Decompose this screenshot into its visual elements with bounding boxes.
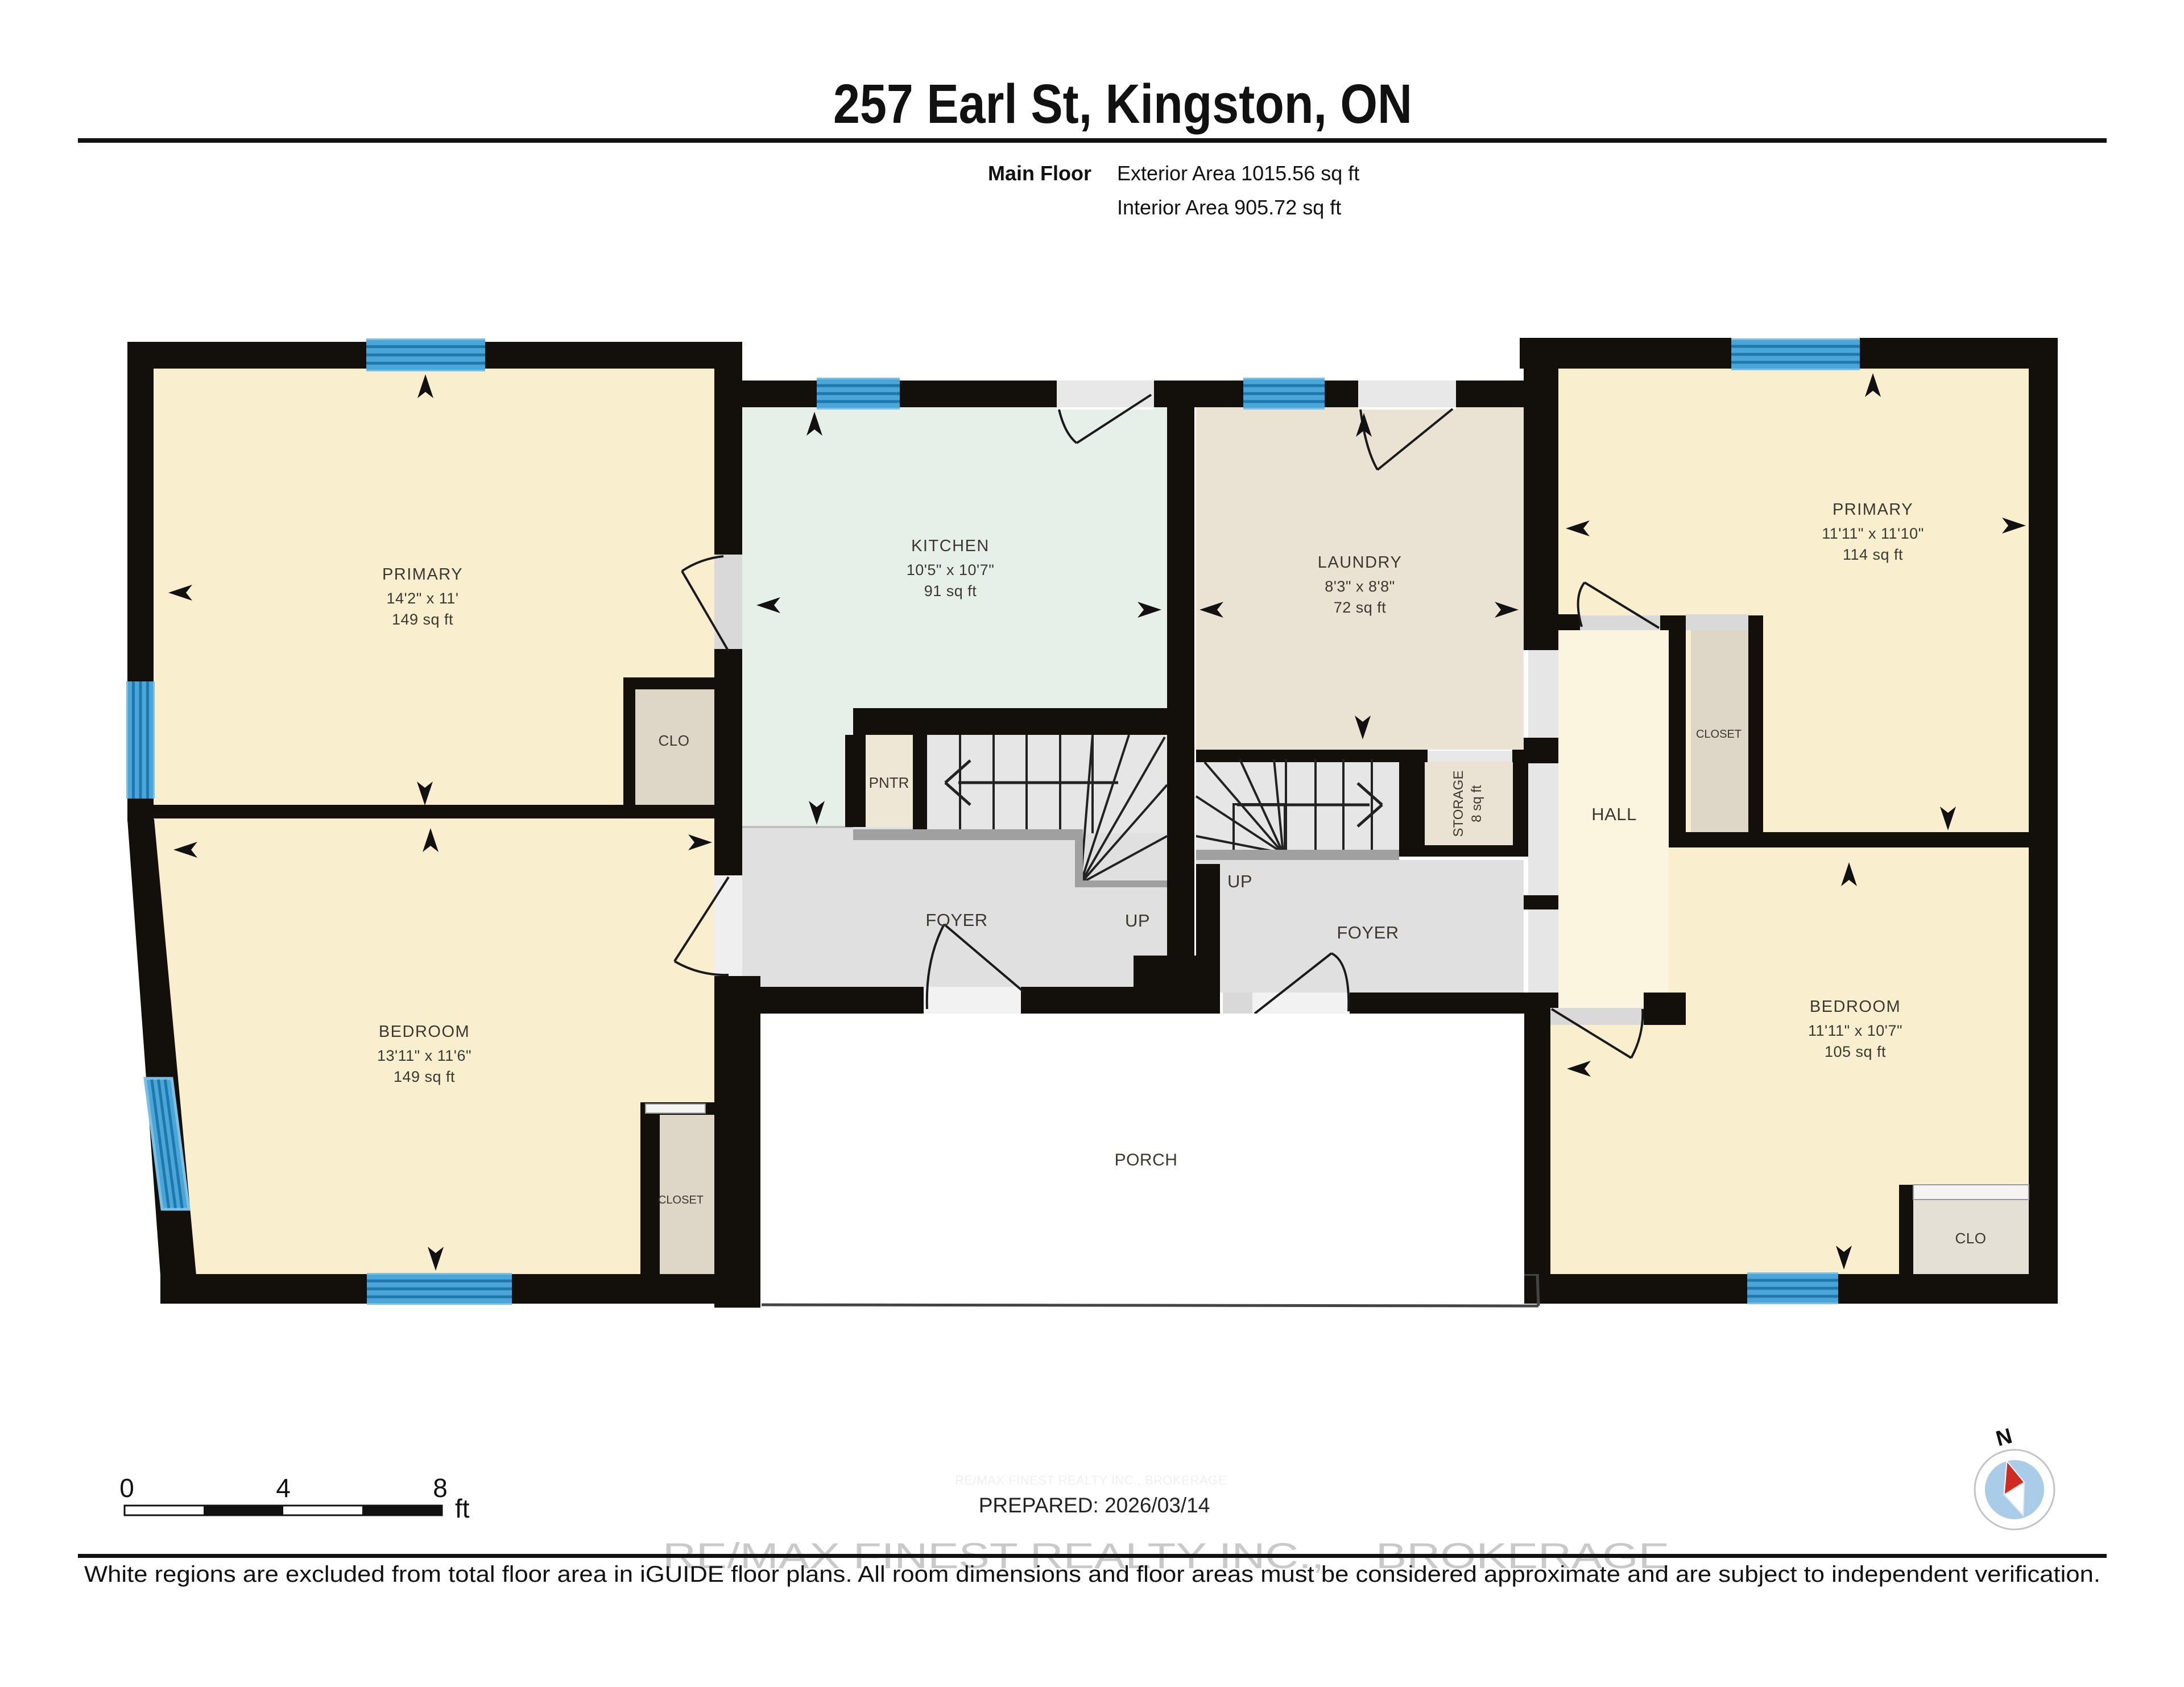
svg-text:STORAGE: STORAGE	[1451, 771, 1466, 837]
svg-text:CLO: CLO	[1955, 1230, 1987, 1247]
svg-text:14'2" x 11': 14'2" x 11'	[387, 590, 459, 607]
svg-text:PRIMARY: PRIMARY	[382, 565, 463, 584]
svg-text:11'11" x 11'10": 11'11" x 11'10"	[1822, 525, 1924, 542]
svg-text:PRIMARY: PRIMARY	[1833, 501, 1913, 519]
svg-text:105 sq ft: 105 sq ft	[1825, 1043, 1886, 1060]
svg-text:PORCH: PORCH	[1115, 1151, 1178, 1169]
svg-text:72 sq ft: 72 sq ft	[1334, 599, 1387, 616]
svg-text:11'11" x 10'7": 11'11" x 10'7"	[1808, 1022, 1902, 1039]
svg-text:13'11" x 11'6": 13'11" x 11'6"	[377, 1047, 471, 1064]
svg-text:BEDROOM: BEDROOM	[1810, 998, 1901, 1016]
svg-text:FOYER: FOYER	[925, 910, 987, 930]
svg-text:10'5" x 10'7": 10'5" x 10'7"	[907, 561, 995, 578]
svg-text:Exterior Area 1015.56 sq ft: Exterior Area 1015.56 sq ft	[1117, 162, 1359, 185]
svg-text:8'3" x 8'8": 8'3" x 8'8"	[1325, 578, 1395, 595]
svg-text:CLOSET: CLOSET	[1696, 728, 1742, 741]
svg-text:Interior Area 905.72 sq ft: Interior Area 905.72 sq ft	[1117, 196, 1341, 219]
svg-text:UP: UP	[1125, 911, 1150, 931]
svg-text:KITCHEN: KITCHEN	[911, 537, 990, 555]
svg-text:8 sq ft: 8 sq ft	[1469, 785, 1484, 822]
svg-text:0: 0	[119, 1473, 134, 1503]
svg-text:RE/MAX FINEST REALTY INC., BRO: RE/MAX FINEST REALTY INC., BROKERAGE	[955, 1473, 1227, 1487]
svg-text:149 sq ft: 149 sq ft	[394, 1068, 455, 1085]
svg-text:91 sq ft: 91 sq ft	[924, 582, 977, 599]
svg-text:149 sq ft: 149 sq ft	[392, 611, 453, 628]
svg-text:CLO: CLO	[659, 732, 690, 749]
svg-text:PREPARED: 2026/03/14: PREPARED: 2026/03/14	[979, 1494, 1210, 1517]
svg-text:257 Earl St, Kingston, ON: 257 Earl St, Kingston, ON	[833, 73, 1412, 135]
svg-text:114 sq ft: 114 sq ft	[1843, 546, 1903, 563]
svg-text:8: 8	[433, 1473, 448, 1503]
svg-text:LAUNDRY: LAUNDRY	[1318, 553, 1403, 572]
svg-text:FOYER: FOYER	[1337, 923, 1399, 942]
svg-text:4: 4	[276, 1473, 291, 1503]
svg-text:ft: ft	[455, 1494, 470, 1523]
svg-text:White regions are excluded fro: White regions are excluded from total fl…	[84, 1562, 2100, 1587]
svg-text:Main Floor: Main Floor	[988, 162, 1091, 185]
svg-text:PNTR: PNTR	[869, 774, 909, 791]
svg-text:HALL: HALL	[1591, 804, 1637, 824]
svg-text:UP: UP	[1227, 871, 1252, 891]
svg-text:BEDROOM: BEDROOM	[379, 1023, 470, 1041]
svg-text:CLOSET: CLOSET	[658, 1194, 704, 1206]
